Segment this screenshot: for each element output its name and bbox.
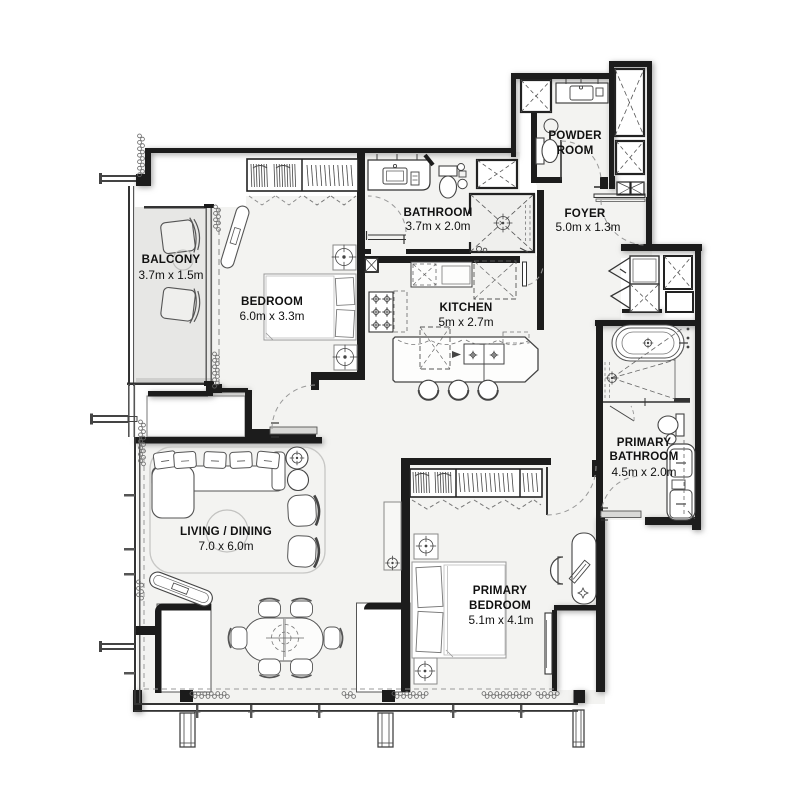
svg-text:3.7m x 1.5m: 3.7m x 1.5m [139,268,204,282]
svg-text:BEDROOM: BEDROOM [469,599,531,612]
svg-text:7.0 x 6.0m: 7.0 x 6.0m [198,539,253,553]
svg-text:5.1m x 4.1m: 5.1m x 4.1m [469,613,534,627]
svg-text:3.7m x 2.0m: 3.7m x 2.0m [406,219,471,233]
svg-text:POWDER: POWDER [548,129,602,142]
svg-text:BATHROOM: BATHROOM [609,450,678,463]
svg-text:ROOM: ROOM [557,144,594,157]
svg-text:5.0m x 1.3m: 5.0m x 1.3m [556,220,621,234]
svg-text:KITCHEN: KITCHEN [440,301,493,314]
svg-text:5m x 2.7m: 5m x 2.7m [438,315,493,329]
svg-text:BATHROOM: BATHROOM [403,206,472,219]
svg-text:FOYER: FOYER [565,207,606,220]
svg-text:PRIMARY: PRIMARY [617,436,671,449]
svg-text:PRIMARY: PRIMARY [473,584,527,597]
svg-text:BEDROOM: BEDROOM [241,295,303,308]
svg-text:6.0m x 3.3m: 6.0m x 3.3m [240,309,305,323]
svg-text:BALCONY: BALCONY [142,253,201,266]
svg-text:LIVING / DINING: LIVING / DINING [180,525,272,538]
svg-text:4.5m x 2.0m: 4.5m x 2.0m [612,465,677,479]
